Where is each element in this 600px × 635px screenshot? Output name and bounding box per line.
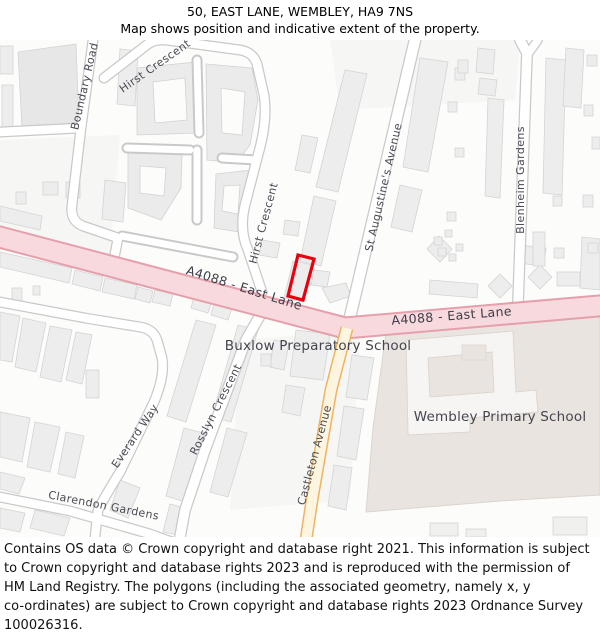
label-wembley-school: Wembley Primary School	[414, 409, 587, 425]
map-header: 50, EAST LANE, WEMBLEY, HA9 7NS Map show…	[0, 0, 600, 40]
copyright-text: Contains OS data © Crown copyright and d…	[4, 540, 596, 635]
copyright-footer: Contains OS data © Crown copyright and d…	[0, 537, 600, 635]
map-canvas: Boundary Road Hirst Crescent Hirst Cresc…	[0, 40, 600, 537]
map-svg: Boundary Road Hirst Crescent Hirst Cresc…	[0, 40, 600, 537]
page-title: 50, EAST LANE, WEMBLEY, HA9 7NS	[0, 3, 600, 20]
property-map-page: 50, EAST LANE, WEMBLEY, HA9 7NS Map show…	[0, 0, 600, 625]
page-subtitle: Map shows position and indicative extent…	[0, 20, 600, 37]
label-blenheim-gardens: Blenheim Gardens	[514, 126, 527, 234]
label-buxlow-school: Buxlow Preparatory School	[225, 338, 411, 354]
